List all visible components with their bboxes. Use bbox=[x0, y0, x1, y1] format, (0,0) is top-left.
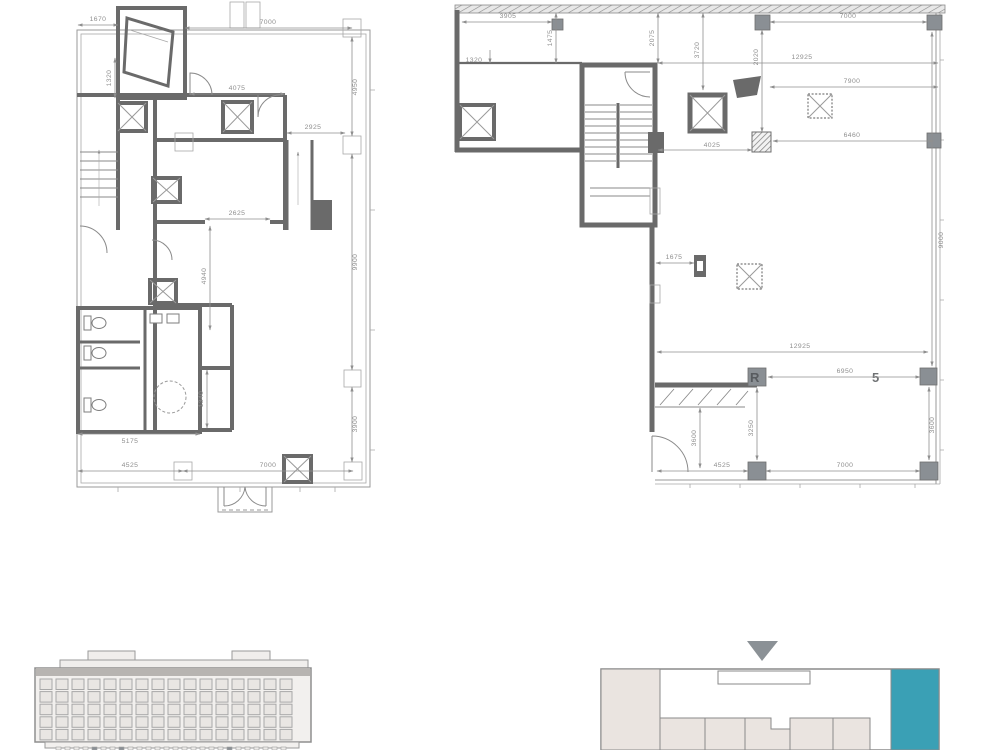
window bbox=[104, 679, 116, 690]
dim-label: 7000 bbox=[260, 19, 277, 26]
ramp-shape bbox=[124, 18, 173, 86]
window bbox=[56, 729, 68, 740]
key-plan-room bbox=[660, 718, 705, 750]
dim-label: 9900 bbox=[352, 254, 359, 271]
column-hatched bbox=[752, 132, 771, 152]
dim-label: 7000 bbox=[837, 462, 854, 469]
window bbox=[40, 729, 52, 740]
dim-label: 7000 bbox=[260, 462, 277, 469]
door-arc bbox=[625, 72, 650, 97]
toilet-icon bbox=[84, 316, 106, 330]
dim-label: 1675 bbox=[666, 254, 683, 261]
window bbox=[168, 717, 180, 728]
window bbox=[200, 679, 212, 690]
stair-core bbox=[582, 65, 664, 225]
window bbox=[168, 704, 180, 715]
dim-label: 3250 bbox=[748, 420, 755, 437]
dim-label: 4025 bbox=[704, 142, 721, 149]
window bbox=[136, 692, 148, 703]
right-floor-plan: R 5 3905 1320 1475 2075 3720 7000 2020 1… bbox=[455, 5, 945, 488]
window bbox=[88, 729, 100, 740]
window bbox=[56, 717, 68, 728]
dim-label: 3600 bbox=[691, 430, 698, 447]
dim-label: 1670 bbox=[90, 16, 107, 23]
angled-racks bbox=[655, 385, 757, 407]
watermark-fragment: 5 bbox=[872, 370, 879, 385]
window bbox=[120, 729, 132, 740]
door-arc bbox=[80, 226, 107, 253]
dim-label: 4940 bbox=[201, 268, 208, 285]
window bbox=[72, 692, 84, 703]
window bbox=[56, 704, 68, 715]
window bbox=[136, 704, 148, 715]
window bbox=[104, 717, 116, 728]
sink-icon bbox=[150, 314, 162, 323]
dim-label: 7900 bbox=[844, 78, 861, 85]
window bbox=[88, 717, 100, 728]
dim-label: 12925 bbox=[790, 343, 811, 350]
window bbox=[280, 704, 292, 715]
window bbox=[248, 717, 260, 728]
window bbox=[152, 692, 164, 703]
window bbox=[200, 717, 212, 728]
duct-walls bbox=[287, 140, 312, 230]
window bbox=[264, 729, 276, 740]
key-plan-highlight-unit bbox=[891, 669, 939, 750]
window bbox=[200, 729, 212, 740]
window bbox=[152, 717, 164, 728]
column-hatched bbox=[344, 370, 361, 387]
right-plan-dimensions: 3905 1320 1475 2075 3720 7000 2020 12925… bbox=[462, 13, 945, 471]
duct-block bbox=[312, 200, 332, 230]
toilet-icon bbox=[84, 398, 106, 412]
window bbox=[248, 679, 260, 690]
window bbox=[136, 679, 148, 690]
window bbox=[136, 717, 148, 728]
column bbox=[920, 462, 938, 480]
restroom-block bbox=[78, 240, 200, 432]
window bbox=[216, 692, 228, 703]
core-walls bbox=[77, 95, 285, 432]
window bbox=[232, 729, 244, 740]
window bbox=[264, 717, 276, 728]
dim-label: 2925 bbox=[305, 124, 322, 131]
window bbox=[168, 729, 180, 740]
window bbox=[40, 679, 52, 690]
window bbox=[280, 692, 292, 703]
window bbox=[184, 729, 196, 740]
dim-label: 9000 bbox=[938, 232, 945, 249]
column-dashed-x-icon bbox=[808, 94, 832, 118]
door-arc bbox=[190, 73, 212, 95]
window bbox=[40, 692, 52, 703]
elevator-shaft-icon bbox=[153, 178, 180, 202]
window bbox=[280, 729, 292, 740]
column bbox=[927, 15, 942, 30]
window bbox=[72, 704, 84, 715]
door-arc bbox=[652, 436, 688, 472]
window bbox=[104, 729, 116, 740]
window bbox=[88, 679, 100, 690]
dim-label: 2075 bbox=[649, 30, 656, 47]
sink-icon bbox=[167, 314, 179, 323]
column bbox=[755, 15, 770, 30]
key-plan-room bbox=[790, 718, 833, 750]
column-dashed-x-icon bbox=[737, 264, 762, 289]
column bbox=[920, 368, 937, 385]
left-floor-plan: 1670 7000 1320 4075 2925 2625 4940 1340 … bbox=[77, 2, 375, 512]
small-pier-core bbox=[697, 261, 703, 271]
window bbox=[104, 704, 116, 715]
location-arrow-icon bbox=[747, 641, 778, 661]
dim-label: 3900 bbox=[352, 416, 359, 433]
window bbox=[72, 729, 84, 740]
window bbox=[216, 729, 228, 740]
window bbox=[184, 717, 196, 728]
dim-label: 3600 bbox=[929, 417, 936, 434]
window bbox=[200, 704, 212, 715]
dim-label: 12925 bbox=[792, 54, 813, 61]
dim-label: 6460 bbox=[844, 132, 861, 139]
ramp-line bbox=[130, 30, 168, 42]
window bbox=[120, 704, 132, 715]
window bbox=[248, 729, 260, 740]
watermark-fragment: R bbox=[750, 370, 760, 385]
elevator-shaft-icon bbox=[284, 456, 311, 482]
window bbox=[40, 717, 52, 728]
window bbox=[152, 704, 164, 715]
key-plan-room bbox=[833, 718, 870, 750]
left-plan-dimensions: 1670 7000 1320 4075 2925 2625 4940 1340 … bbox=[78, 16, 359, 471]
hall-perimeter bbox=[655, 13, 936, 484]
window bbox=[280, 717, 292, 728]
window bbox=[232, 717, 244, 728]
window bbox=[168, 692, 180, 703]
building-elevation bbox=[35, 651, 311, 750]
hall-perimeter-2 bbox=[655, 13, 940, 484]
window bbox=[264, 704, 276, 715]
window bbox=[216, 717, 228, 728]
accessible-wc-circle bbox=[154, 381, 186, 413]
key-plan bbox=[601, 641, 939, 750]
window bbox=[40, 704, 52, 715]
wall-ticks bbox=[690, 60, 944, 488]
dim-label: 1320 bbox=[466, 57, 483, 64]
top-stub-1 bbox=[230, 2, 244, 28]
dim-label: 7000 bbox=[840, 13, 857, 20]
entrance-double-door bbox=[218, 487, 272, 512]
column-hatched bbox=[343, 136, 361, 154]
window bbox=[184, 679, 196, 690]
dim-label: 4075 bbox=[229, 85, 246, 92]
dim-label: 6950 bbox=[837, 368, 854, 375]
dim-label: 1340 bbox=[198, 391, 205, 408]
window bbox=[232, 679, 244, 690]
top-exterior-wall bbox=[455, 5, 945, 13]
window bbox=[232, 692, 244, 703]
column bbox=[552, 19, 563, 30]
toilet-icon bbox=[84, 346, 106, 360]
top-stub-2 bbox=[246, 2, 260, 28]
facade-top-band bbox=[36, 668, 310, 676]
shaft-dark-shape bbox=[733, 76, 761, 98]
window bbox=[184, 692, 196, 703]
window bbox=[264, 679, 276, 690]
window bbox=[264, 692, 276, 703]
column bbox=[927, 133, 941, 148]
dim-label: 4950 bbox=[352, 79, 359, 96]
dim-label: 1320 bbox=[106, 70, 113, 87]
window bbox=[232, 704, 244, 715]
window bbox=[280, 679, 292, 690]
dim-label: 4525 bbox=[122, 462, 139, 469]
window bbox=[248, 704, 260, 715]
plan-sheet: 1670 7000 1320 4075 2925 2625 4940 1340 … bbox=[0, 0, 1000, 750]
dim-label: 4525 bbox=[714, 462, 731, 469]
window bbox=[56, 692, 68, 703]
window bbox=[152, 729, 164, 740]
window bbox=[152, 679, 164, 690]
dim-label: 3905 bbox=[500, 13, 517, 20]
drawing-canvas: 1670 7000 1320 4075 2925 2625 4940 1340 … bbox=[0, 0, 1000, 750]
key-plan-left-wing bbox=[601, 669, 660, 750]
window bbox=[88, 692, 100, 703]
window bbox=[136, 729, 148, 740]
window bbox=[120, 679, 132, 690]
window bbox=[72, 679, 84, 690]
dim-label: 2625 bbox=[229, 210, 246, 217]
elevator-shaft-icon bbox=[460, 105, 494, 139]
elevator-shaft-icon bbox=[118, 103, 146, 131]
wing-walls bbox=[455, 10, 582, 152]
window bbox=[120, 717, 132, 728]
window bbox=[120, 692, 132, 703]
window bbox=[104, 692, 116, 703]
window bbox=[216, 679, 228, 690]
elevator-shaft-icon bbox=[690, 95, 725, 131]
window bbox=[88, 704, 100, 715]
window bbox=[248, 692, 260, 703]
window bbox=[184, 704, 196, 715]
column bbox=[748, 462, 766, 480]
key-plan-top-room bbox=[718, 671, 810, 684]
window bbox=[72, 717, 84, 728]
dim-label: 5175 bbox=[122, 438, 139, 445]
window bbox=[200, 692, 212, 703]
dim-label: 1475 bbox=[547, 30, 554, 47]
window bbox=[168, 679, 180, 690]
window bbox=[216, 704, 228, 715]
dim-label: 3720 bbox=[694, 42, 701, 59]
door-arc bbox=[258, 95, 280, 117]
key-plan-room bbox=[705, 718, 745, 750]
window bbox=[56, 679, 68, 690]
elevator-shaft-icon bbox=[223, 102, 252, 132]
